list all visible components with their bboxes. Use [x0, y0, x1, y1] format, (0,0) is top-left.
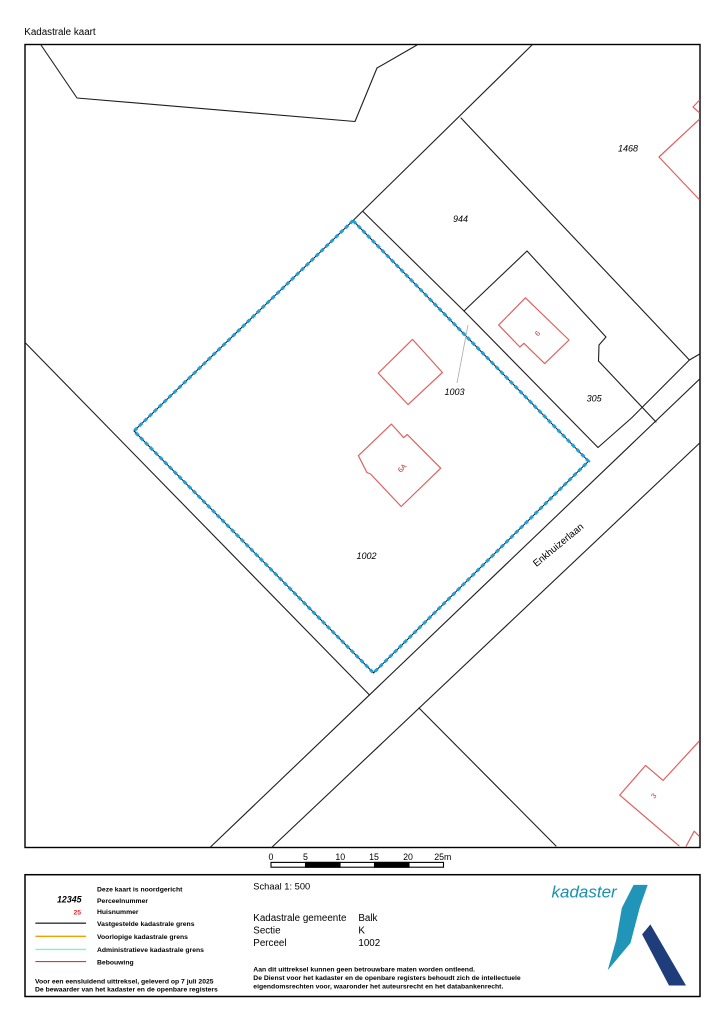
svg-text:Sectie: Sectie [253, 926, 281, 937]
svg-text:Kadastrale gemeente: Kadastrale gemeente [253, 913, 347, 924]
svg-text:Bebouwing: Bebouwing [97, 959, 134, 966]
svg-text:eigendomsrechten voor, waarond: eigendomsrechten voor, waaronder het aut… [253, 983, 503, 990]
svg-text:1003: 1003 [445, 387, 465, 397]
svg-text:1468: 1468 [618, 144, 638, 154]
svg-text:Vastgestelde kadastrale grens: Vastgestelde kadastrale grens [97, 921, 195, 928]
svg-text:Administratieve kadastrale gre: Administratieve kadastrale grens [97, 947, 204, 954]
svg-text:10: 10 [335, 852, 345, 862]
svg-text:15: 15 [369, 852, 379, 862]
svg-text:Deze kaart is noordgericht: Deze kaart is noordgericht [97, 886, 183, 893]
svg-text:Perceel: Perceel [253, 938, 286, 949]
svg-text:Aan dit uittreksel kunnen geen: Aan dit uittreksel kunnen geen betrouwba… [253, 967, 475, 974]
svg-text:0: 0 [268, 852, 273, 862]
svg-text:Schaal 1: 500: Schaal 1: 500 [253, 882, 310, 892]
svg-text:Voor een eensluidend uittrekse: Voor een eensluidend uittreksel, gelever… [35, 978, 214, 985]
svg-text:25m: 25m [434, 852, 451, 862]
svg-text:12345: 12345 [57, 895, 82, 905]
svg-text:Huisnummer: Huisnummer [97, 909, 139, 916]
svg-text:Voorlopige kadastrale grens: Voorlopige kadastrale grens [97, 934, 188, 941]
svg-text:Kadastrale kaart: Kadastrale kaart [24, 27, 96, 38]
svg-text:Perceelnummer: Perceelnummer [97, 898, 148, 905]
svg-text:1002: 1002 [358, 938, 380, 949]
svg-text:1002: 1002 [357, 551, 377, 561]
svg-text:Balk: Balk [358, 913, 377, 924]
svg-text:kadaster: kadaster [552, 883, 619, 902]
svg-text:5: 5 [303, 852, 308, 862]
svg-text:De Dienst voor het kadaster en: De Dienst voor het kadaster en de openba… [253, 975, 521, 982]
svg-text:305: 305 [587, 394, 603, 404]
svg-text:25: 25 [73, 909, 81, 916]
svg-text:De bewaarder van het kadaster: De bewaarder van het kadaster en de open… [35, 986, 218, 993]
svg-text:944: 944 [453, 214, 468, 224]
svg-text:K: K [358, 926, 365, 937]
svg-text:20: 20 [403, 852, 413, 862]
